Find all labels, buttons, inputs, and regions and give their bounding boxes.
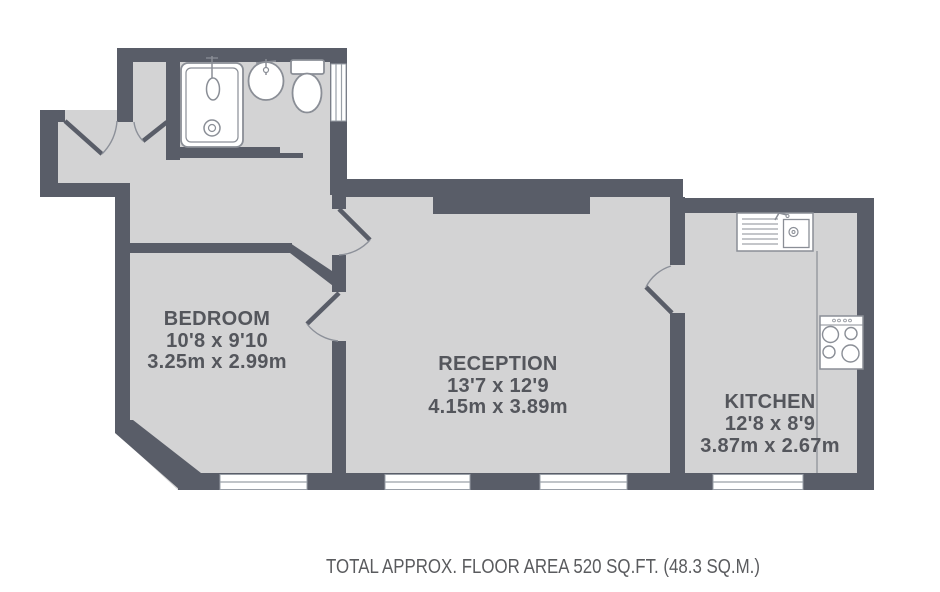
wall-hall-bottom [40,183,115,197]
kitchen-window [713,475,803,490]
divider-bed-reception-bottom [332,341,346,475]
shower-head-icon [207,78,220,100]
basin-tap-icon [264,68,269,73]
reception-window-right [540,475,627,490]
toilet [291,60,324,113]
kitchen-sink [737,213,813,251]
total-floor-area-note: TOTAL APPROX. FLOOR AREA 520 SQ.FT. (48.… [326,556,760,578]
wall-bedroom-top [130,243,292,253]
divider-kitchen-bottom [670,313,685,475]
wall-bathroom-left [166,48,180,160]
toilet-cistern [291,60,324,74]
reception-name: RECEPTION [438,353,557,375]
reception-window-left [385,475,470,490]
reception-size-imperial: 13'7 x 12'9 [447,375,549,397]
bedroom-size-imperial: 10'8 x 9'10 [166,330,268,352]
reception-size-metric: 4.15m x 3.89m [428,396,568,418]
floorplan-page: BEDROOM 10'8 x 9'10 3.25m x 2.99m RECEPT… [0,0,940,592]
bedroom-size-metric: 3.25m x 2.99m [147,351,287,373]
kitchen-size-metric: 3.87m x 2.67m [700,435,840,457]
bathroom-window [331,64,346,121]
bedroom-window [220,475,307,490]
toilet-bowl [293,74,322,113]
hob [820,316,863,369]
shower [181,56,243,147]
wall-reception-top [345,179,683,197]
floorplan-drawing: BEDROOM 10'8 x 9'10 3.25m x 2.99m RECEPT… [0,0,940,592]
wall-bathroom-bottom [178,147,280,158]
divider-bed-reception-stub [332,195,346,209]
kitchen-size-imperial: 12'8 x 8'9 [725,413,815,435]
wall-kitchen-top [683,198,874,213]
wall-bedroom-left [115,183,130,423]
chimney-breast [433,197,590,214]
wall-bathroom-bottom-lip [280,153,303,158]
bedroom-name: BEDROOM [164,308,271,330]
wall-hall-right-column [117,48,133,122]
divider-kitchen-top [670,197,685,265]
kitchen-name: KITCHEN [725,391,816,413]
